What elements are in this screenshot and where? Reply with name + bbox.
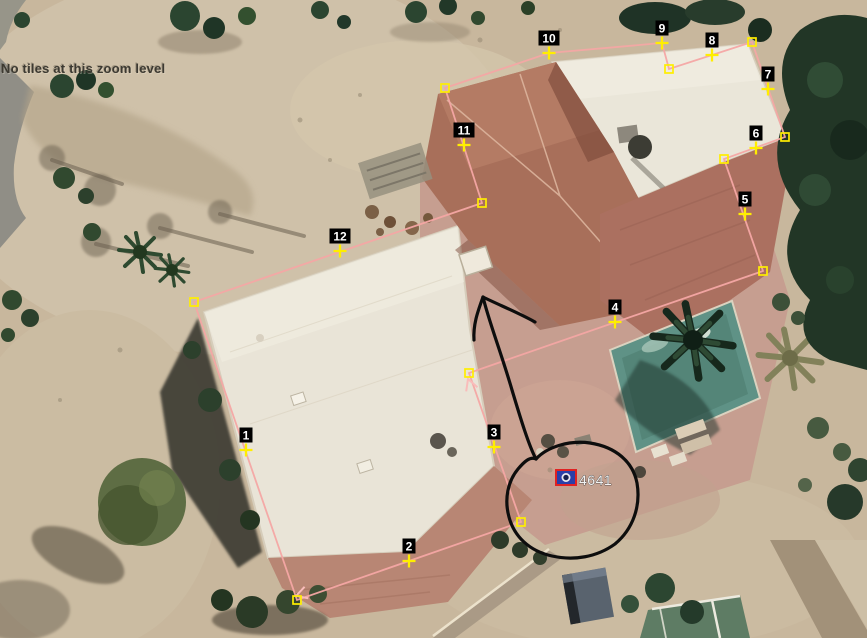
vertex-label: 1: [243, 429, 250, 443]
vertex-label: 5: [742, 193, 749, 207]
parcel-point-icon-glyph: [562, 474, 569, 481]
parcel-number-label: 4641: [579, 472, 612, 488]
vertex-label: 8: [709, 34, 716, 48]
satellite-background: [0, 0, 867, 638]
map-viewport[interactable]: 1234567891011124641 No tiles at this zoo…: [0, 0, 867, 638]
vertex-label: 11: [458, 124, 471, 138]
parcel-marker[interactable]: 4641: [556, 470, 612, 488]
vertex-label: 6: [753, 127, 760, 141]
vertex-label: 9: [659, 22, 666, 36]
vertex-label: 2: [406, 540, 413, 554]
vertex-label: 3: [491, 426, 498, 440]
aerial-photo: 1234567891011124641: [0, 0, 867, 638]
vertex-label: 10: [542, 32, 556, 46]
vertex-label: 12: [333, 230, 347, 244]
vertex-label: 7: [765, 68, 772, 82]
vertex-label: 4: [612, 301, 619, 315]
